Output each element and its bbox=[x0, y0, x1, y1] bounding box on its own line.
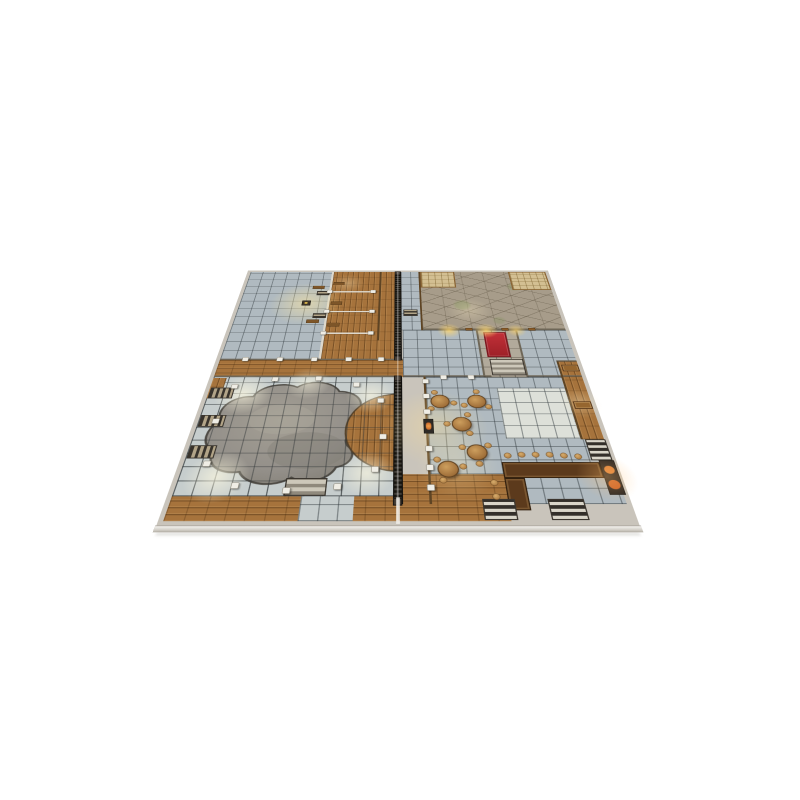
stone-pillar bbox=[327, 290, 333, 293]
staircase bbox=[312, 313, 326, 318]
stool bbox=[459, 464, 467, 470]
hearth bbox=[423, 419, 434, 434]
stone-pillar bbox=[320, 331, 327, 335]
round-table bbox=[451, 417, 473, 431]
light-glow bbox=[335, 451, 395, 496]
stone-pillar bbox=[353, 382, 360, 387]
stone-pillar bbox=[369, 310, 375, 313]
stone-pillar bbox=[370, 290, 376, 293]
staircase bbox=[186, 445, 217, 458]
writing-desk bbox=[573, 401, 594, 408]
stone-pillar bbox=[333, 483, 342, 489]
bench bbox=[306, 320, 319, 324]
bar-stool bbox=[574, 454, 583, 460]
stone-pillar bbox=[242, 357, 250, 361]
stool bbox=[461, 403, 469, 408]
stool bbox=[450, 400, 457, 405]
round-table bbox=[437, 461, 460, 478]
stool bbox=[459, 444, 467, 450]
map-tile-edge bbox=[153, 526, 644, 533]
stone-pillar bbox=[423, 394, 430, 399]
map-shadow bbox=[155, 532, 640, 535]
stone-pillar bbox=[378, 357, 385, 361]
bar-stool bbox=[517, 452, 526, 458]
door bbox=[501, 328, 508, 331]
light-glow bbox=[570, 454, 647, 502]
staircase bbox=[489, 359, 526, 375]
stone-pillar bbox=[426, 464, 434, 470]
stone-pillar bbox=[231, 384, 239, 389]
stone-pillar bbox=[422, 379, 429, 383]
bench bbox=[327, 323, 339, 327]
bench bbox=[333, 282, 344, 285]
door bbox=[528, 328, 536, 331]
bar-stool bbox=[559, 453, 568, 459]
dungeon-floor-map bbox=[156, 270, 639, 525]
stone-pillar bbox=[276, 357, 283, 361]
light-glow bbox=[344, 379, 396, 414]
bar-stool bbox=[492, 493, 501, 500]
stone-pillar bbox=[311, 357, 318, 361]
staircase bbox=[585, 439, 613, 460]
bar-stool bbox=[503, 453, 512, 459]
stone-pillar bbox=[315, 376, 322, 380]
bar-stool bbox=[545, 452, 554, 458]
stone-pillar bbox=[427, 484, 435, 490]
light-glow bbox=[281, 368, 333, 399]
stone-pillar bbox=[379, 434, 387, 439]
stone-pillar bbox=[368, 331, 374, 335]
stool bbox=[443, 421, 451, 426]
staircase bbox=[482, 499, 518, 520]
bar-stool bbox=[531, 452, 540, 458]
map-features-layer bbox=[156, 270, 639, 525]
staircase bbox=[403, 310, 417, 316]
staircase bbox=[207, 388, 235, 399]
product-photo bbox=[0, 0, 800, 800]
stool bbox=[473, 389, 480, 394]
stool bbox=[485, 404, 493, 409]
battle-map-photo bbox=[213, 183, 583, 553]
stone-pillar bbox=[440, 375, 447, 379]
light-glow bbox=[445, 298, 493, 324]
stool bbox=[464, 412, 472, 417]
writing-desk bbox=[561, 365, 580, 372]
stone-pillar bbox=[345, 357, 352, 361]
stone-pillar bbox=[425, 446, 433, 452]
stone-pillar bbox=[371, 466, 379, 472]
altar-brazier bbox=[301, 301, 311, 306]
bench bbox=[313, 286, 325, 289]
stone-pillar bbox=[323, 310, 329, 313]
stone-pillar bbox=[467, 375, 474, 379]
staircase bbox=[547, 499, 589, 520]
stool bbox=[475, 461, 484, 467]
stool bbox=[466, 430, 474, 435]
light-glow bbox=[505, 324, 528, 336]
stone-pillar bbox=[230, 482, 240, 488]
stone-pillar bbox=[282, 487, 291, 493]
stool bbox=[431, 390, 438, 395]
stone-pillar bbox=[377, 398, 384, 403]
stone-pillar bbox=[423, 409, 430, 414]
bench bbox=[330, 302, 342, 305]
stone-pillar bbox=[271, 377, 279, 381]
stool bbox=[484, 443, 492, 449]
door bbox=[465, 328, 472, 331]
light-glow bbox=[436, 323, 462, 338]
stool bbox=[439, 477, 447, 483]
light-glow bbox=[174, 451, 256, 504]
light-glow bbox=[473, 323, 500, 338]
bar-stool bbox=[490, 479, 499, 485]
stone-pillar bbox=[202, 461, 212, 467]
